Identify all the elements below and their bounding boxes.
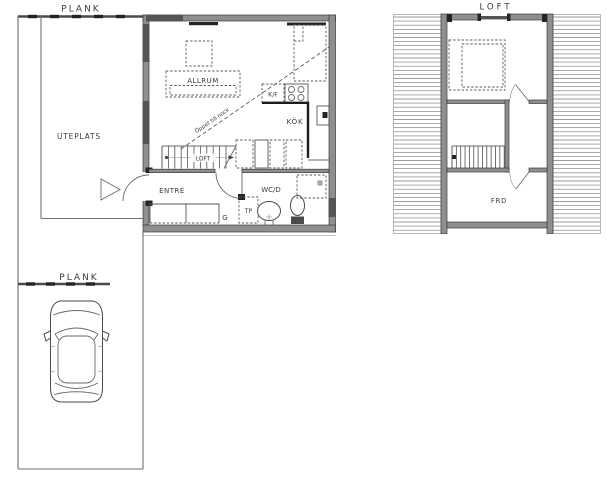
stairs-ground: LOFT [162,146,236,169]
car-mirror-right [103,331,110,341]
hall-wall-right-part [242,169,329,172]
bed-mattress-dashed [462,44,503,87]
stair-side-wall [505,100,509,172]
roof-hatch-right [553,17,601,230]
loft-stair-newel [452,155,456,159]
site-plan-drawing: PLANK UTEPLATS PLANK [0,0,607,480]
loft-mid-wall-right [529,100,547,104]
frd-door-arc [510,172,517,189]
roof-hatch-left [394,17,442,230]
counter-edge [262,103,308,158]
plank-bottom-label: PLANK [59,273,98,283]
sofa-cushions [170,86,236,96]
stair-arrow-head [229,155,235,159]
entry-opening [142,172,151,201]
high-window-bar-left [189,22,218,25]
loft-window [481,16,507,19]
window-right [329,198,337,217]
frd-wall-left [447,168,509,172]
floor-plan-page: PLANK UTEPLATS PLANK [0,0,607,480]
burner [289,95,295,101]
wcd-label: WC/D [261,186,281,194]
entre-label: ENTRÉ [159,186,185,195]
storage-solid [255,140,268,168]
storage-dashed-3 [286,140,302,168]
tp-label: TP [244,208,253,215]
sink-basin [323,112,328,118]
burner [298,87,304,93]
frd-door-leaf [516,172,529,189]
wardrobes: G [150,204,228,223]
bedroom-door-arc [510,85,516,102]
kf-label: K/F [268,92,278,99]
open-to-ridge-label: Öppet till nock [194,106,232,135]
hall-wall-left-part [149,169,215,172]
toilet-tank [291,217,304,225]
stairs-loft [452,146,505,168]
loft-title: LOFT [479,3,512,13]
wardrobe-boxes [150,204,219,223]
roof-band-right-frame [553,15,601,234]
bedroom-door-leaf [516,85,530,102]
shower-dashed [297,175,326,198]
entry-jamb-bottom [146,201,153,207]
frd-wall-right [529,168,547,172]
car-top-view [44,301,109,402]
entrance-arrow [101,179,120,200]
burner [289,87,295,93]
driveway: PLANK [18,232,143,469]
loft-wall-right [547,14,553,234]
loft-window-post [507,14,511,22]
toilet-bowl [291,196,305,216]
stair-start-dot [165,156,168,159]
table-dashed [186,41,212,66]
loft-plan: LOFT [394,3,601,234]
sofa-dashed: ALLRUM [166,71,240,97]
loft-mid-wall-left [447,100,509,104]
window-left-upper [143,24,150,62]
loft-window-post [478,14,482,22]
frd-label: FRD [491,197,507,205]
ground-floor-plan: LOFT Öppet till nock ALLRUM K/F [101,15,336,236]
stove [285,84,308,103]
storage-dashed-1 [236,140,253,168]
loft-edge-step [294,26,303,41]
plank-top-label: PLANK [61,5,100,15]
roof-band-left-frame [394,15,442,234]
kok-label: KÖK [287,117,304,126]
storage-dashed-2 [270,140,284,168]
loft-corner-post-right [542,14,547,22]
window-left-lower [143,101,150,144]
loft-wall-bottom [447,222,547,228]
g-label: G [222,214,227,222]
burner [298,95,304,101]
car-mirror-left [44,331,51,341]
allrum-label: ALLRUM [187,77,219,85]
uteplats-label: UTEPLATS [57,132,101,141]
wall-bottom [143,225,336,232]
loft-edge-dashed [294,25,326,81]
loft-wall-left [441,14,447,234]
loft-stair-treads [452,146,504,168]
loft-corner-post-left [447,14,452,22]
stairs-loft-label: LOFT [196,157,211,163]
bed-outline-dashed [449,40,505,90]
window-top-left [146,15,183,22]
wc-shower-room: WC/D TP [239,175,326,225]
